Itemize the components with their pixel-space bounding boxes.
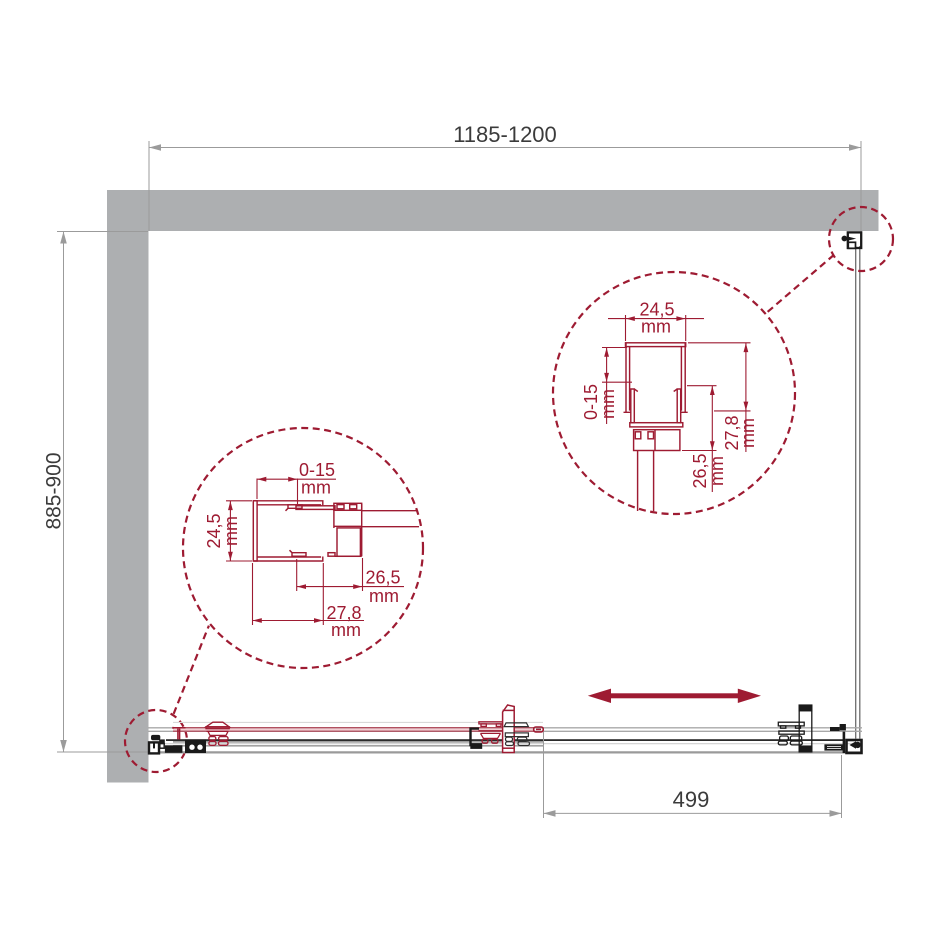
svg-text:mm: mm: [301, 478, 331, 498]
svg-text:mm: mm: [221, 516, 241, 546]
svg-text:1185-1200: 1185-1200: [453, 122, 557, 147]
svg-text:mm: mm: [707, 456, 727, 486]
svg-text:mm: mm: [641, 317, 671, 337]
svg-text:mm: mm: [598, 389, 618, 419]
svg-text:499: 499: [673, 787, 710, 812]
svg-text:885-900: 885-900: [43, 452, 66, 529]
svg-text:mm: mm: [738, 418, 758, 448]
svg-text:26,5: 26,5: [365, 568, 400, 588]
svg-text:mm: mm: [331, 620, 361, 640]
svg-text:mm: mm: [369, 586, 399, 606]
